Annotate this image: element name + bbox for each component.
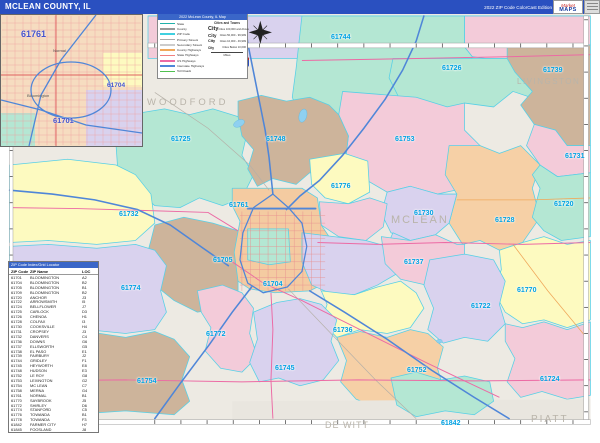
zip-table-row[interactable]: 61845FOOSLANDJ8 (9, 427, 98, 432)
county-label-piatt: PIATT (531, 414, 569, 425)
logo-info-box (584, 0, 600, 14)
inset-city-normal: Normal (53, 48, 66, 53)
zip-label-61705[interactable]: 61705 (213, 257, 232, 264)
zip-label-61736[interactable]: 61736 (333, 327, 352, 334)
zip-label-61744[interactable]: 61744 (331, 34, 350, 41)
scale-label: Miles (208, 53, 246, 57)
zip-label-61753[interactable]: 61753 (395, 136, 414, 143)
zip-label-61745[interactable]: 61745 (275, 365, 294, 372)
zip-label-61730[interactable]: 61730 (414, 210, 433, 217)
county-label-de-witt: DE WITT (325, 420, 369, 430)
col-zip-code: ZIP Code (9, 269, 30, 274)
marketmaps-logo: Market MAPS (553, 0, 583, 14)
zip-label-61772[interactable]: 61772 (206, 331, 225, 338)
zip-label-61722[interactable]: 61722 (471, 303, 490, 310)
col-loc: LOC (82, 269, 96, 274)
zip-label-61776[interactable]: 61776 (331, 183, 350, 190)
col-zip-name: ZIP Name (30, 269, 82, 274)
county-label-woodford: WOODFORD (147, 97, 229, 108)
zip-label-61754[interactable]: 61754 (137, 378, 156, 385)
zip-table-header: ZIP Code ZIP Name LOC (9, 268, 98, 275)
inset-labels-layer: 617616170461701NormalBloomington (1, 15, 142, 146)
zip-label-61770[interactable]: 61770 (517, 287, 536, 294)
zip-label-61731[interactable]: 61731 (565, 153, 584, 160)
zip-label-61737[interactable]: 61737 (404, 259, 423, 266)
zip-label-61748[interactable]: 61748 (266, 136, 285, 143)
inset-zip-label-61701[interactable]: 61701 (53, 116, 74, 125)
zip-label-61720[interactable]: 61720 (554, 201, 573, 208)
title-bar: MCLEAN COUNTY, IL 2022 ZIP Code ColorCas… (0, 0, 600, 14)
zip-label-61842[interactable]: 61842 (441, 420, 460, 427)
map-legend[interactable]: 2022 McLean County, IL Map StateCountyZI… (157, 13, 248, 79)
scale-bar: Miles (208, 52, 246, 58)
legend-city-sizes: CityCities 100,000 and AboveCityCities 5… (208, 26, 246, 51)
zip-label-61725[interactable]: 61725 (171, 136, 190, 143)
zip-index-table[interactable]: ZIP Code Index/Grid Locator ZIP Code ZIP… (8, 261, 99, 433)
inset-zip-label-61761[interactable]: 61761 (21, 29, 46, 39)
zip-label-61774[interactable]: 61774 (121, 285, 140, 292)
zip-label-61704[interactable]: 61704 (263, 281, 282, 288)
legend-line-types: StateCountyZIP CodePrimary StreetsSecond… (158, 20, 208, 74)
zip-label-61726[interactable]: 61726 (442, 65, 461, 72)
zip-label-61761[interactable]: 61761 (229, 202, 248, 209)
inset-city-bloomington: Bloomington (27, 93, 49, 98)
zip-label-61752[interactable]: 61752 (407, 367, 426, 374)
edition-label: 2022 ZIP Code ColorCast Edition (484, 5, 552, 10)
zip-label-61732[interactable]: 61732 (119, 211, 138, 218)
page-title: MCLEAN COUNTY, IL (5, 2, 91, 11)
legend-city-row: CityCities Below 10,000 (208, 45, 246, 51)
zip-label-61728[interactable]: 61728 (495, 217, 514, 224)
legend-item: Toll Roads (160, 69, 208, 74)
zip-label-61724[interactable]: 61724 (540, 376, 559, 383)
logo-maps: MAPS (554, 8, 582, 13)
bloomington-normal-inset-map[interactable]: 617616170461701NormalBloomington (0, 14, 143, 147)
zip-label-61739[interactable]: 61739 (543, 67, 562, 74)
county-label-livingston: LIVINGSTON (517, 77, 580, 86)
inset-zip-label-61704[interactable]: 61704 (107, 82, 125, 89)
